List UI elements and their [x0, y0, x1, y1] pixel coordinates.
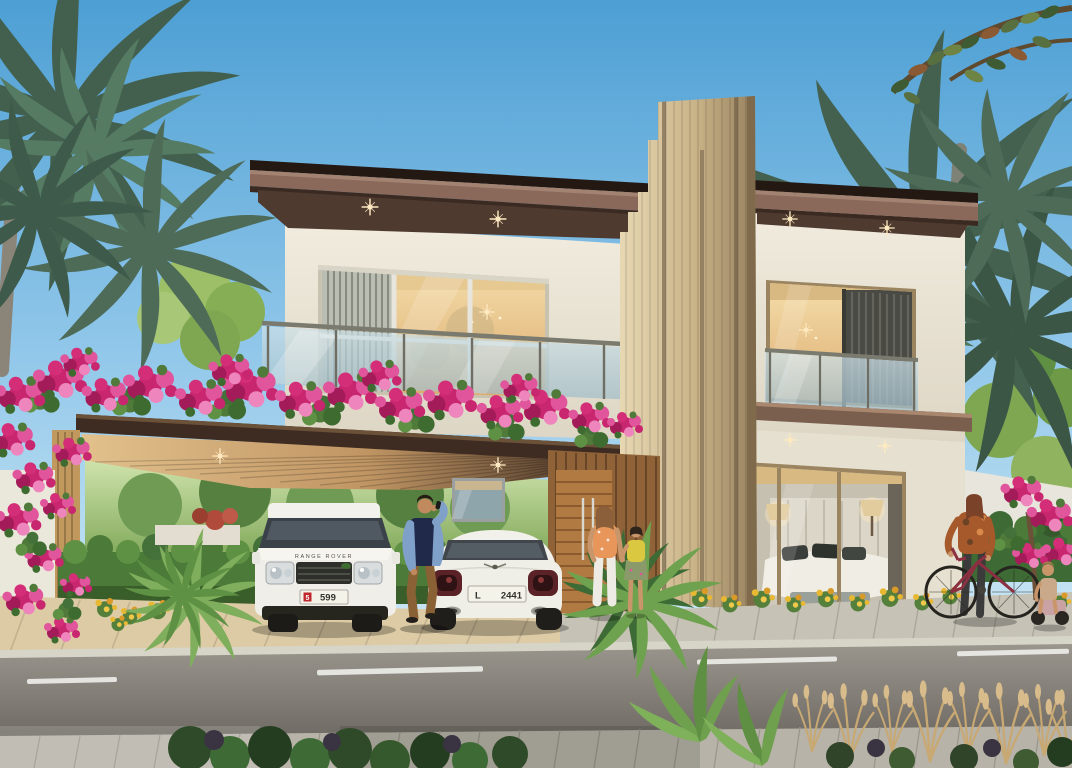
- suv-license-plate: 5 599: [300, 590, 348, 604]
- coupe-license-plate: L 2441: [468, 586, 526, 602]
- architectural-render: RANGE ROVER 5 599: [0, 0, 1072, 768]
- land-rover-badge: [341, 563, 351, 569]
- right-wing: [746, 180, 978, 625]
- range-rover-suv: RANGE ROVER 5 599: [252, 503, 400, 638]
- suv-plate-badge: 5: [306, 595, 310, 602]
- suv-wheel: [352, 614, 382, 632]
- coupe-wheel: [536, 608, 562, 630]
- suv-hood-text: RANGE ROVER: [295, 554, 353, 560]
- suv-mirror: [252, 552, 260, 564]
- suv-plate-number: 599: [320, 593, 336, 604]
- suv-wheel: [268, 614, 298, 632]
- utility-window: [452, 478, 505, 522]
- coupe-plate-number: 2441: [501, 591, 523, 602]
- suv-mirror: [392, 552, 400, 564]
- coupe-plate-prefix: L: [475, 591, 481, 602]
